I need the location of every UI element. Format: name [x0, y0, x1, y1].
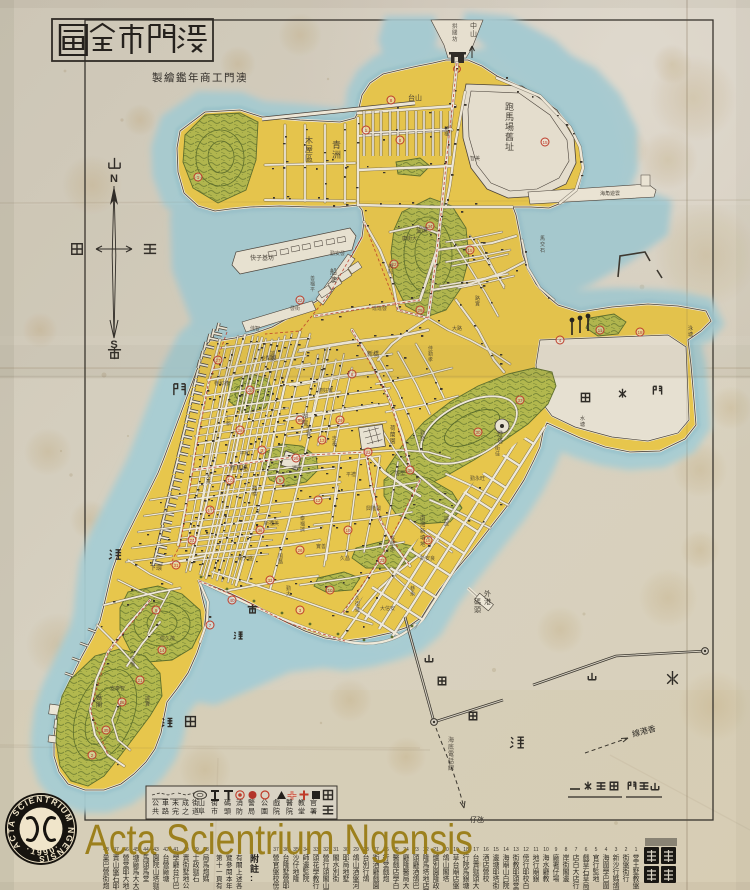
svg-text:29: 29	[337, 418, 343, 423]
svg-text:围路: 围路	[278, 554, 283, 566]
svg-text:市: 市	[211, 807, 218, 816]
svg-text:7: 7	[209, 623, 212, 628]
svg-text:德好實: 德好實	[318, 387, 333, 394]
svg-text:水塘: 水塘	[580, 415, 585, 428]
svg-text:3: 3	[615, 847, 618, 853]
svg-text:南灣新填地: 南灣新填地	[420, 514, 426, 548]
svg-text:5: 5	[595, 847, 598, 853]
svg-text:車: 車	[162, 798, 169, 807]
svg-text:40: 40	[229, 598, 235, 603]
svg-text:勤永旺: 勤永旺	[470, 475, 485, 482]
svg-text:街盤街行: 街盤街行	[623, 853, 630, 883]
svg-text:荷蘭園: 荷蘭園	[390, 424, 396, 445]
svg-text:14: 14	[503, 847, 509, 853]
svg-text:廠署仔場: 廠署仔場	[553, 853, 560, 883]
svg-text:39: 39	[407, 468, 413, 473]
svg-text:實善: 實善	[316, 543, 326, 550]
svg-text:里實: 里實	[306, 426, 311, 438]
svg-text:新大盛: 新大盛	[238, 555, 253, 562]
svg-text:9: 9	[555, 847, 558, 853]
svg-text:誠實: 誠實	[145, 695, 150, 708]
svg-text:儉久茂: 儉久茂	[160, 635, 175, 642]
svg-text:堂: 堂	[298, 807, 305, 816]
svg-text:31: 31	[173, 563, 179, 568]
svg-text:署: 署	[310, 808, 317, 816]
svg-text:20: 20	[247, 388, 253, 393]
svg-text:仁新: 仁新	[226, 415, 231, 428]
svg-text:岸街閣邊: 岸街閣邊	[563, 854, 570, 883]
svg-text:信福: 信福	[130, 655, 135, 668]
svg-text:成: 成	[182, 798, 189, 807]
svg-text:海底電話線: 海底電話線	[448, 736, 454, 772]
svg-text:山: 山	[198, 798, 205, 807]
svg-text:善里: 善里	[395, 470, 405, 477]
svg-text:媽閣: 媽閣	[96, 694, 102, 709]
svg-text:7: 7	[575, 847, 578, 853]
svg-text:路: 路	[162, 807, 169, 816]
svg-text:平禮: 平禮	[346, 471, 356, 478]
svg-text:24: 24	[189, 538, 195, 543]
svg-text:未: 未	[172, 798, 179, 807]
svg-text:13: 13	[513, 847, 519, 853]
svg-text:6: 6	[585, 847, 588, 853]
svg-text:大茂: 大茂	[206, 473, 211, 486]
svg-text:15: 15	[493, 847, 499, 853]
svg-text:下環: 下環	[150, 565, 162, 572]
svg-text:局: 局	[248, 808, 255, 816]
svg-text:醫: 醫	[286, 799, 293, 807]
svg-text:35: 35	[103, 728, 109, 733]
svg-text:5: 5	[279, 478, 282, 483]
svg-text:阜: 阜	[198, 807, 205, 816]
svg-text:23: 23	[379, 558, 385, 563]
svg-text:院: 院	[286, 807, 293, 816]
svg-text:燈塔: 燈塔	[497, 430, 503, 445]
svg-text:久昌: 久昌	[340, 555, 350, 562]
svg-text:官: 官	[310, 798, 317, 807]
svg-text:公: 公	[261, 799, 268, 807]
svg-text:公: 公	[152, 799, 159, 807]
svg-text:大信安: 大信安	[380, 605, 395, 612]
svg-text:38: 38	[237, 428, 243, 433]
svg-text:教: 教	[298, 798, 305, 807]
svg-text:消: 消	[236, 798, 243, 807]
svg-text:17: 17	[473, 847, 479, 853]
svg-text:勤發: 勤發	[420, 430, 425, 443]
svg-text:酒店營校: 酒店營校	[483, 854, 490, 883]
svg-text:28: 28	[119, 700, 125, 705]
svg-text:戲: 戲	[273, 798, 280, 807]
svg-text:8: 8	[565, 847, 568, 853]
svg-text:1: 1	[635, 847, 638, 853]
svg-text:33: 33	[267, 578, 273, 583]
svg-text:園: 園	[261, 808, 268, 816]
svg-text:新禮美: 新禮美	[264, 520, 279, 527]
svg-text:30: 30	[475, 430, 481, 435]
svg-text:久街盛: 久街盛	[355, 595, 360, 613]
svg-text:10: 10	[543, 847, 549, 853]
svg-text:19: 19	[345, 528, 351, 533]
svg-text:10: 10	[227, 478, 233, 483]
svg-text:Acta Scientrium Ngensis: Acta Scientrium Ngensis	[85, 816, 473, 864]
svg-text:勤禮: 勤禮	[252, 485, 257, 498]
svg-text:街佳: 街佳	[495, 445, 500, 458]
svg-text:21: 21	[137, 678, 143, 683]
svg-text:25: 25	[293, 456, 299, 461]
svg-text:地行廟銀: 地行廟銀	[533, 853, 540, 883]
svg-text:泰福誠: 泰福誠	[300, 515, 305, 533]
svg-text:巷和德: 巷和德	[214, 380, 229, 387]
svg-text:2: 2	[625, 847, 628, 853]
svg-text:禮忠: 禮忠	[292, 465, 302, 472]
svg-text:碼: 碼	[224, 799, 231, 807]
svg-text:安泰智: 安泰智	[110, 685, 125, 692]
svg-text:4: 4	[605, 847, 608, 853]
svg-text:街: 街	[211, 798, 218, 807]
svg-text:14: 14	[159, 648, 165, 653]
svg-text:26: 26	[297, 548, 303, 553]
svg-text:警: 警	[248, 798, 255, 807]
svg-text:36: 36	[257, 528, 263, 533]
svg-text:11: 11	[533, 847, 538, 853]
svg-text:海水廳教: 海水廳教	[543, 853, 550, 883]
svg-text:勤大: 勤大	[286, 585, 291, 598]
svg-text:17: 17	[207, 508, 213, 513]
svg-text:興隆興: 興隆興	[366, 505, 381, 512]
svg-text:12: 12	[523, 847, 529, 853]
svg-text:12: 12	[315, 498, 321, 503]
svg-text:10: 10	[327, 588, 333, 593]
svg-text:16: 16	[483, 847, 489, 853]
svg-text:之: 之	[182, 807, 189, 816]
svg-text:9: 9	[155, 608, 158, 613]
svg-text:頭: 頭	[224, 808, 231, 816]
svg-text:外港: 外港	[484, 589, 491, 606]
svg-text:3: 3	[261, 448, 264, 453]
svg-text:新馬路: 新馬路	[230, 464, 248, 472]
svg-text:共: 共	[152, 807, 159, 816]
svg-text:16: 16	[425, 538, 431, 543]
svg-text:13: 13	[319, 438, 325, 443]
svg-text:官行監地: 官行監地	[593, 853, 600, 883]
svg-text:院: 院	[273, 807, 280, 816]
svg-text:2: 2	[91, 753, 94, 758]
svg-text:3: 3	[299, 608, 302, 613]
svg-text:誠誠: 誠誠	[444, 515, 449, 528]
svg-text:防: 防	[236, 807, 243, 816]
svg-text:新安良: 新安良	[420, 555, 435, 562]
svg-text:湖隍: 湖隍	[302, 412, 308, 427]
svg-text:忠泰: 忠泰	[332, 436, 337, 448]
svg-text:平和: 平和	[240, 450, 250, 457]
svg-text:32: 32	[365, 450, 371, 455]
svg-text:長路永: 長路永	[390, 536, 395, 553]
svg-text:37: 37	[517, 398, 523, 403]
svg-text:巷永: 巷永	[410, 586, 415, 598]
svg-text:完: 完	[172, 807, 179, 816]
